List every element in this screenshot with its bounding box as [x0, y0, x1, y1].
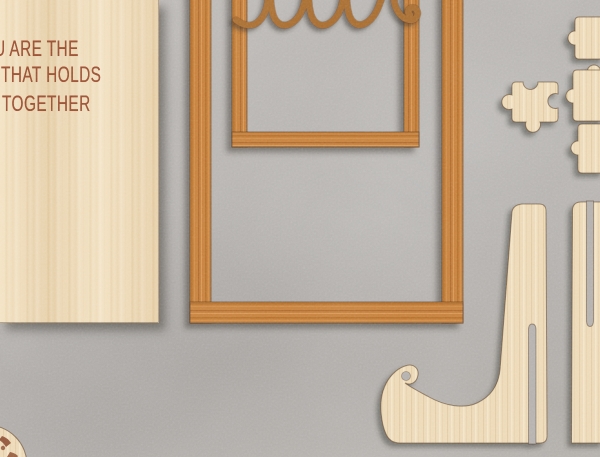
puzzle-piece-full — [502, 82, 558, 132]
easel-stand-back — [572, 201, 600, 443]
easel-stand-front — [381, 204, 547, 444]
puzzle-piece-partial-bottom — [571, 124, 600, 173]
cursive-script-cutout — [236, 0, 418, 25]
craft-flatlay-photo: U ARE THE THAT HOLDS TOGETHER — [0, 0, 600, 457]
easel-back-slot — [587, 201, 594, 327]
engraved-wood-disc — [0, 425, 27, 457]
puzzle-piece-partial-middle — [566, 65, 600, 121]
wood-pieces-layer — [0, 0, 600, 457]
puzzle-pieces — [502, 17, 600, 173]
scroll-foot-hole — [402, 372, 411, 381]
outer-wood-frame — [190, 0, 463, 323]
puzzle-piece-partial-top — [568, 17, 600, 59]
easel-front-slot — [529, 324, 537, 444]
